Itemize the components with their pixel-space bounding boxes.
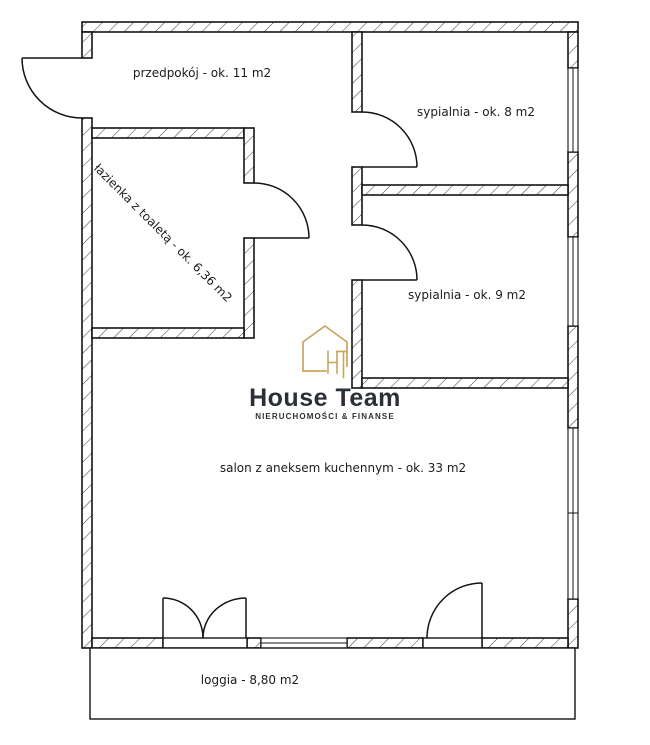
window-bedroom9: [568, 237, 578, 326]
label-lazienka: łazienka z toaletą - ok. 6,36 m2: [91, 161, 235, 305]
wall-divider-lower: [352, 280, 362, 388]
label-loggia: loggia - 8,80 m2: [201, 673, 299, 687]
label-sypialnia9: sypialnia - ok. 9 m2: [408, 288, 526, 302]
label-salon: salon z aneksem kuchennym - ok. 33 m2: [220, 461, 466, 475]
label-sypialnia8: sypialnia - ok. 8 m2: [417, 105, 535, 119]
wall-bathroom-right-upper: [244, 128, 254, 183]
entrance-door: [22, 58, 82, 118]
house-team-logo: House Team NIERUCHOMOŚCI & FINANSE: [249, 326, 401, 421]
logo-tagline: NIERUCHOMOŚCI & FINANSE: [255, 412, 395, 421]
wall-left-lower: [82, 118, 92, 648]
threshold-balcony-door: [423, 638, 482, 648]
inner-walls: [92, 32, 568, 388]
wall-right-4: [568, 599, 578, 648]
wall-divider-upper: [352, 32, 362, 112]
label-przedpokoj: przedpokój - ok. 11 m2: [133, 66, 271, 80]
wall-bottom-3: [347, 638, 423, 648]
logo-letters-ht: [328, 352, 347, 378]
window-salon-bottom: [261, 638, 347, 648]
wall-top: [82, 22, 578, 32]
wall-right-3: [568, 326, 578, 428]
wall-bathroom-right-lower: [244, 238, 254, 338]
french-door: [163, 598, 246, 638]
threshold-french-door: [163, 638, 247, 648]
floor-plan-drawing: przedpokój - ok. 11 m2 sypialnia - ok. 8…: [0, 0, 650, 745]
wall-left-upper: [82, 32, 92, 58]
logo-name: House Team: [249, 384, 401, 412]
wall-divider-mid: [352, 167, 362, 225]
window-bedroom8: [568, 68, 578, 152]
bathroom-door: [254, 183, 309, 238]
bedroom9-door: [362, 225, 417, 280]
wall-bottom-2: [247, 638, 261, 648]
wall-between-bedrooms: [362, 185, 568, 195]
balcony-door: [427, 583, 482, 638]
wall-right-2: [568, 152, 578, 237]
window-salon-right: [568, 428, 578, 599]
floor-plan-page: przedpokój - ok. 11 m2 sypialnia - ok. 8…: [0, 0, 650, 745]
windows: [261, 68, 578, 648]
loggia-outline: [90, 648, 575, 719]
bedroom8-door: [362, 112, 417, 167]
wall-bottom-4: [482, 638, 568, 648]
wall-bottom-1: [92, 638, 163, 648]
wall-bathroom-top: [92, 128, 244, 138]
wall-bathroom-bottom: [92, 328, 244, 338]
wall-right-1: [568, 32, 578, 68]
room-labels: przedpokój - ok. 11 m2 sypialnia - ok. 8…: [91, 66, 535, 687]
house-icon: [303, 326, 347, 378]
